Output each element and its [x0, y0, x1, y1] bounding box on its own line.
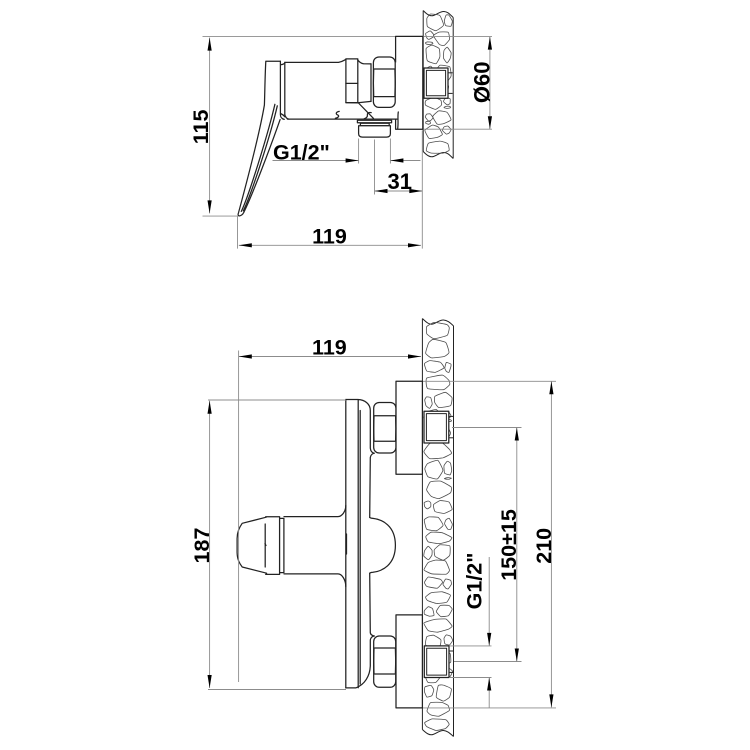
svg-text:Ø60: Ø60	[469, 62, 494, 104]
svg-text:G1/2": G1/2"	[462, 553, 486, 610]
svg-text:G1/2": G1/2"	[273, 141, 330, 165]
svg-text:119: 119	[312, 225, 347, 249]
svg-text:150±15: 150±15	[497, 509, 521, 581]
svg-text:187: 187	[190, 528, 214, 564]
svg-text:119: 119	[312, 336, 347, 360]
svg-text:31: 31	[387, 169, 411, 194]
svg-text:115: 115	[189, 110, 213, 145]
svg-text:210: 210	[532, 528, 556, 564]
